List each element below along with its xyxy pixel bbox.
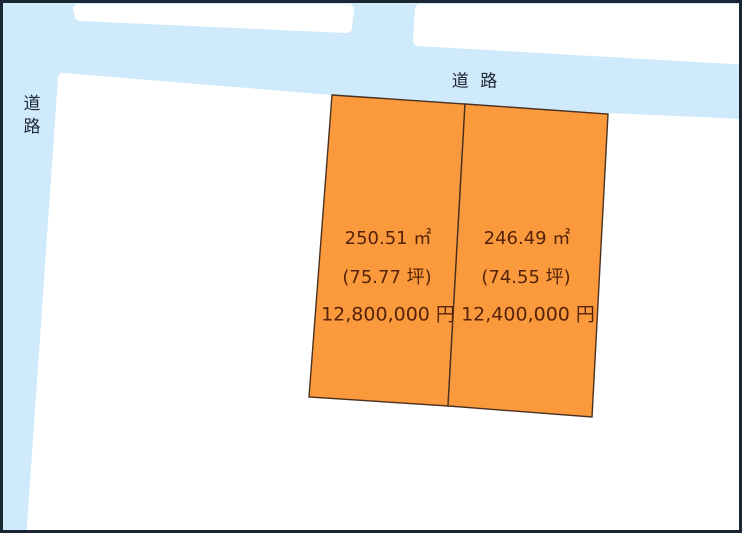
plot-left-price: 12,800,000 円 (321, 300, 455, 327)
plot-left-area-m2: 250.51 ㎡ (345, 224, 432, 250)
plot-right-shape (448, 104, 608, 417)
plot-right-area-m2: 246.49 ㎡ (484, 224, 571, 250)
plot-left-shape (309, 95, 465, 406)
plot-left-area-tsubo: (75.77 坪) (342, 263, 431, 289)
plot-right-area-tsubo: (74.55 坪) (481, 263, 570, 289)
road-label-left: 道路 (18, 94, 43, 140)
plot-right-price: 12,400,000 円 (461, 300, 595, 327)
land-plot-diagram: 道 路 道路 250.51 ㎡ (75.77 坪) 12,800,000 円 2… (0, 0, 742, 533)
road-label-top: 道 路 (452, 67, 500, 92)
